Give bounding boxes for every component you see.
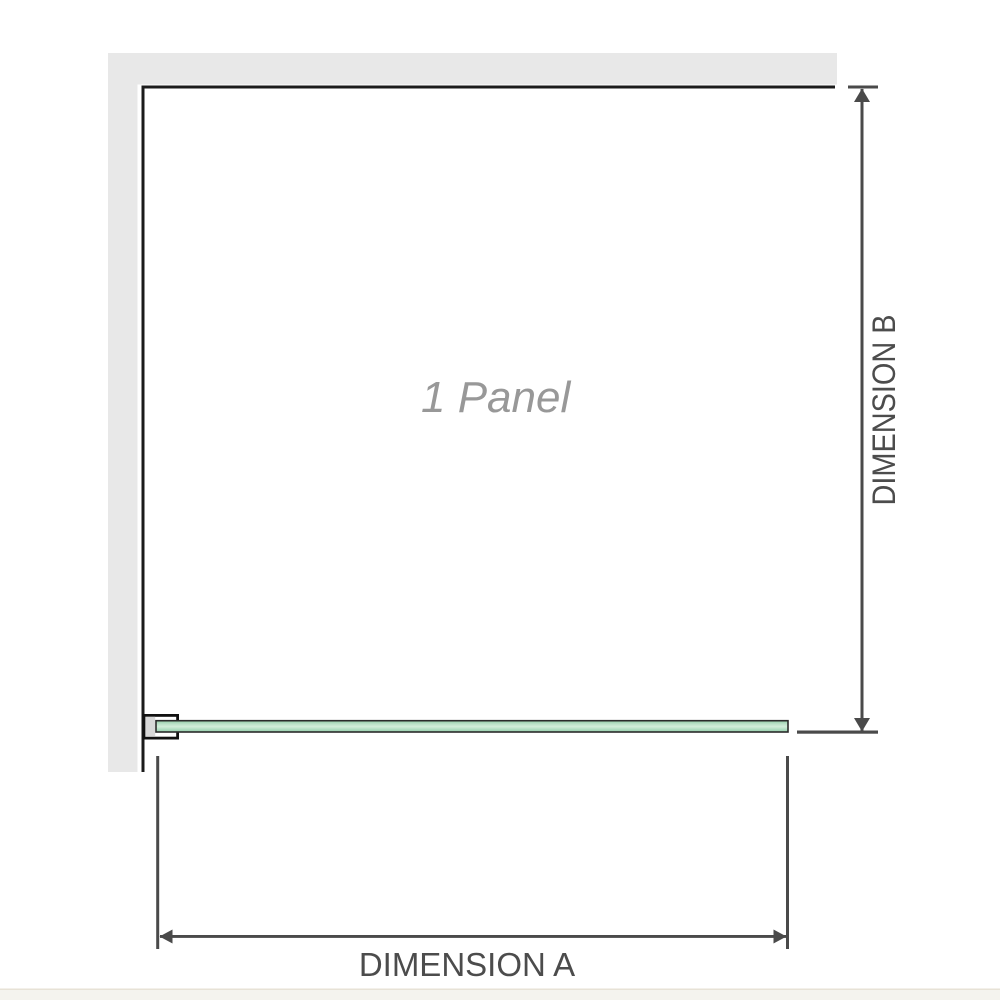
svg-text:DIMENSION B: DIMENSION B [867, 315, 903, 506]
svg-text:1 Panel: 1 Panel [421, 373, 571, 422]
svg-text:DIMENSION A: DIMENSION A [359, 946, 575, 983]
